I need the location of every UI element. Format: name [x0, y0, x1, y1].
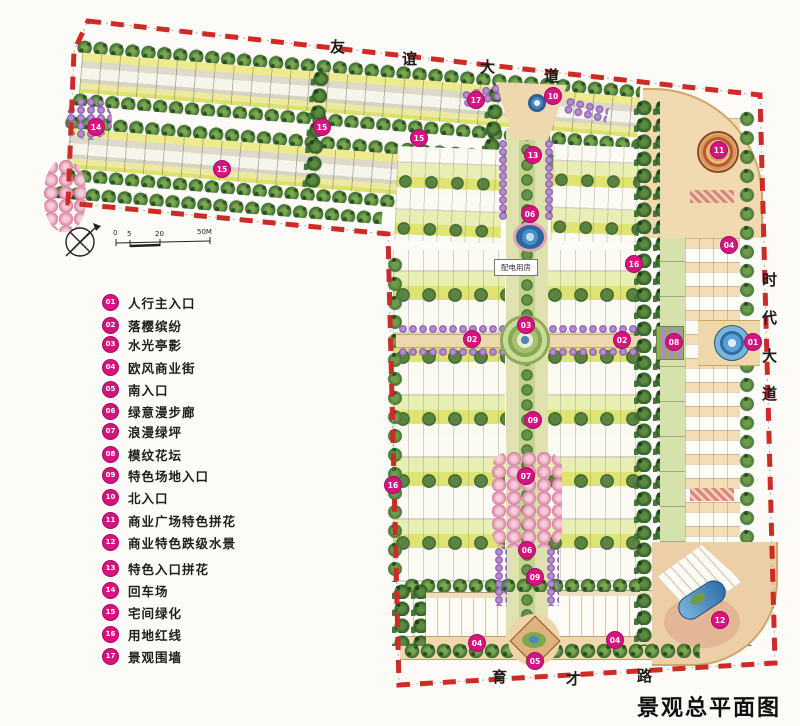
site-boundary-overlay [0, 0, 800, 726]
scale-label-50m: 50M [197, 228, 212, 236]
red-property-line [68, 21, 775, 685]
road-shidai-char1: 时 [762, 269, 777, 290]
boundary-centerline [68, 21, 775, 685]
landscape-master-plan: 配电用房 0 5 20 50M 友 谊 大 道 时 代 大 道 育 才 路 [0, 0, 800, 726]
scale-label-5: 5 [127, 230, 131, 238]
power-room-label: 配电用房 [494, 259, 538, 276]
power-room-text: 配电用房 [501, 262, 531, 273]
road-youyi-char4: 道 [544, 65, 559, 86]
road-youyi-char2: 谊 [402, 48, 417, 69]
road-youyi-char3: 大 [480, 56, 495, 77]
scale-label-0: 0 [113, 229, 117, 237]
scale-bar [116, 237, 210, 247]
drawing-title: 景观总平面图 [637, 690, 781, 722]
road-yucai-char1: 育 [492, 666, 507, 687]
road-shidai-char2: 代 [762, 307, 777, 328]
north-arrow-compass [66, 223, 101, 256]
road-youyi-char1: 友 [330, 36, 345, 57]
road-shidai-char4: 道 [762, 383, 777, 404]
road-yucai-char3: 路 [637, 665, 652, 686]
road-yucai-char2: 才 [566, 668, 581, 689]
scale-label-20: 20 [155, 230, 164, 238]
road-shidai-char3: 大 [762, 345, 777, 366]
